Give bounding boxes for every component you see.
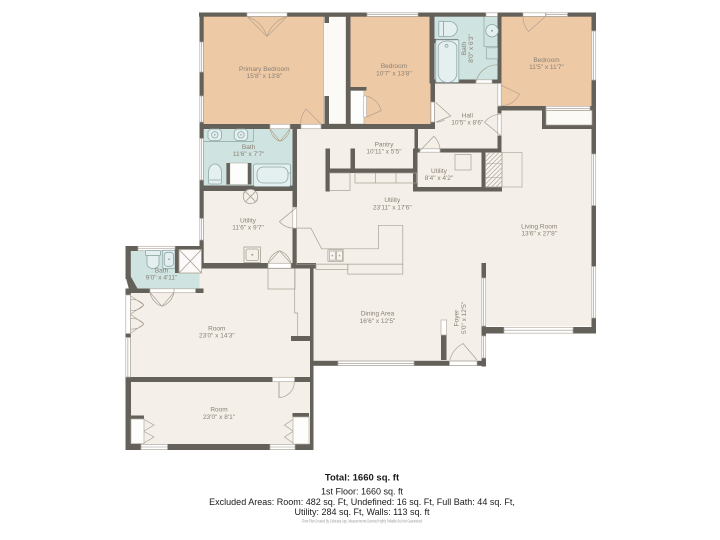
svg-text:16'6" x 12'5": 16'6" x 12'5" <box>360 318 396 325</box>
svg-text:Utility: Utility <box>240 217 257 224</box>
svg-text:23'0" x 8'1": 23'0" x 8'1" <box>203 414 236 421</box>
svg-text:10'5" x 8'6": 10'5" x 8'6" <box>451 119 484 126</box>
svg-text:1st Floor: 1660 sq. ft: 1st Floor: 1660 sq. ft <box>321 487 404 497</box>
svg-text:Bath: Bath <box>155 267 169 274</box>
svg-text:Bedroom: Bedroom <box>533 57 559 64</box>
svg-text:Excluded Areas: Room: 482 sq.: Excluded Areas: Room: 482 sq. Ft, Undefi… <box>209 497 515 507</box>
svg-text:Utility: 284 sq. Ft, Walls: 11: Utility: 284 sq. Ft, Walls: 113 sq. ft <box>294 507 430 517</box>
svg-text:15'8" x 13'8": 15'8" x 13'8" <box>246 73 282 80</box>
svg-text:11'6" x 7'7": 11'6" x 7'7" <box>233 151 265 158</box>
svg-text:Utility: Utility <box>384 197 401 204</box>
svg-text:Dining Area: Dining Area <box>361 311 395 318</box>
svg-text:23'11" x 17'6": 23'11" x 17'6" <box>373 204 412 211</box>
svg-text:Room: Room <box>208 325 225 332</box>
svg-text:11'6" x 9'7": 11'6" x 9'7" <box>232 225 264 232</box>
svg-text:11'5" x 11'7": 11'5" x 11'7" <box>529 64 564 71</box>
svg-text:Pantry: Pantry <box>375 141 395 148</box>
svg-text:Room: Room <box>210 406 227 413</box>
svg-text:5'0" x 12'5": 5'0" x 12'5" <box>461 301 468 334</box>
svg-text:Hall: Hall <box>462 112 474 119</box>
svg-text:Total: 1660 sq. ft: Total: 1660 sq. ft <box>325 473 400 484</box>
svg-text:Living Room: Living Room <box>521 223 557 230</box>
svg-text:9'0" x 4'11": 9'0" x 4'11" <box>146 275 178 282</box>
svg-text:Foyer: Foyer <box>454 309 461 326</box>
svg-text:23'0" x 14'3": 23'0" x 14'3" <box>199 332 235 339</box>
svg-text:13'6" x 27'8": 13'6" x 27'8" <box>521 231 557 238</box>
svg-text:8'0" x 6'3": 8'0" x 6'3" <box>468 34 475 63</box>
svg-text:Bath: Bath <box>242 144 256 151</box>
svg-text:Floor Plan Created By Cubicasa: Floor Plan Created By Cubicasa App. Meas… <box>302 519 422 524</box>
svg-text:8'4" x 4'2": 8'4" x 4'2" <box>425 175 454 182</box>
svg-text:10'11" x 5'5": 10'11" x 5'5" <box>366 149 402 156</box>
svg-text:Utility: Utility <box>431 168 448 175</box>
svg-text:10'7" x 13'8": 10'7" x 13'8" <box>376 70 412 77</box>
svg-text:Bedroom: Bedroom <box>381 63 407 70</box>
